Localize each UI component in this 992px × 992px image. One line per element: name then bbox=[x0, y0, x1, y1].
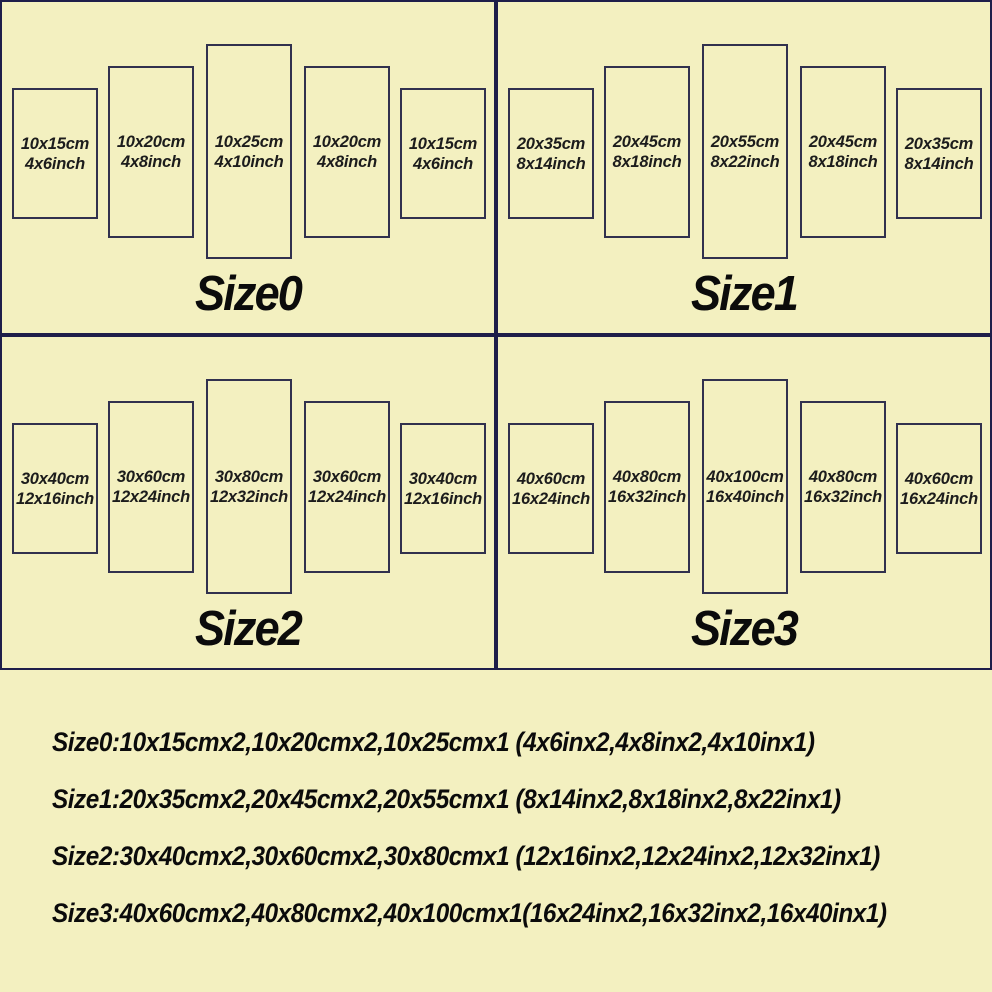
canvas-panel: 40x80cm 16x32inch bbox=[800, 401, 886, 573]
canvas-panel: 10x15cm 4x6inch bbox=[12, 88, 98, 219]
quadrant-size3: 40x60cm 16x24inch 40x80cm 16x32inch 40x1… bbox=[496, 335, 992, 670]
panel-size-inch: 8x18inch bbox=[808, 152, 877, 172]
size-summary-line-size1: Size1:20x35cmx2,20x45cmx2,20x55cmx1 (8x1… bbox=[52, 783, 898, 815]
panel-size-inch: 4x10inch bbox=[214, 152, 283, 172]
canvas-panel: 20x35cm 8x14inch bbox=[508, 88, 594, 219]
panel-size-cm: 30x60cm bbox=[313, 467, 381, 487]
panel-size-cm: 10x25cm bbox=[215, 132, 283, 152]
canvas-panel: 30x60cm 12x24inch bbox=[304, 401, 390, 573]
canvas-panel: 10x25cm 4x10inch bbox=[206, 44, 292, 259]
panel-size-inch: 8x18inch bbox=[612, 152, 681, 172]
panel-size-cm: 30x40cm bbox=[21, 469, 89, 489]
size-title: Size3 bbox=[518, 605, 971, 654]
panel-size-cm: 10x15cm bbox=[21, 134, 89, 154]
size-title: Size0 bbox=[22, 270, 475, 319]
panel-size-inch: 16x40inch bbox=[706, 487, 784, 507]
quadrant-size1: 20x35cm 8x14inch 20x45cm 8x18inch 20x55c… bbox=[496, 0, 992, 335]
size-summary-section: Size0:10x15cmx2,10x20cmx2,10x25cmx1 (4x6… bbox=[0, 670, 992, 992]
canvas-panel: 20x45cm 8x18inch bbox=[604, 66, 690, 238]
panel-size-inch: 12x24inch bbox=[308, 487, 386, 507]
size-options-grid: 10x15cm 4x6inch 10x20cm 4x8inch 10x25cm … bbox=[0, 0, 992, 670]
size-summary-line-size2: Size2:30x40cmx2,30x60cmx2,30x80cmx1 (12x… bbox=[52, 840, 898, 872]
quadrant-size2: 30x40cm 12x16inch 30x60cm 12x24inch 30x8… bbox=[0, 335, 496, 670]
canvas-panel: 20x55cm 8x22inch bbox=[702, 44, 788, 259]
panel-size-cm: 20x45cm bbox=[809, 132, 877, 152]
panel-size-cm: 20x45cm bbox=[613, 132, 681, 152]
canvas-panel: 40x60cm 16x24inch bbox=[508, 423, 594, 554]
canvas-panel: 20x45cm 8x18inch bbox=[800, 66, 886, 238]
panel-size-inch: 4x8inch bbox=[317, 152, 377, 172]
panel-size-inch: 12x16inch bbox=[16, 489, 94, 509]
panel-size-cm: 30x80cm bbox=[215, 467, 283, 487]
panel-size-cm: 30x60cm bbox=[117, 467, 185, 487]
panel-size-cm: 20x55cm bbox=[711, 132, 779, 152]
panel-size-cm: 40x80cm bbox=[613, 467, 681, 487]
canvas-panel: 30x40cm 12x16inch bbox=[12, 423, 98, 554]
canvas-panel: 10x20cm 4x8inch bbox=[108, 66, 194, 238]
canvas-panel: 10x20cm 4x8inch bbox=[304, 66, 390, 238]
panel-size-cm: 10x15cm bbox=[409, 134, 477, 154]
panel-size-cm: 30x40cm bbox=[409, 469, 477, 489]
panel-size-inch: 16x32inch bbox=[804, 487, 882, 507]
size-summary-line-size3: Size3:40x60cmx2,40x80cmx2,40x100cmx1(16x… bbox=[52, 897, 898, 929]
panel-size-cm: 20x35cm bbox=[905, 134, 973, 154]
panel-size-cm: 10x20cm bbox=[117, 132, 185, 152]
panel-size-cm: 40x80cm bbox=[809, 467, 877, 487]
canvas-panel: 40x80cm 16x32inch bbox=[604, 401, 690, 573]
panel-size-inch: 4x6inch bbox=[413, 154, 473, 174]
panel-size-inch: 8x22inch bbox=[710, 152, 779, 172]
panel-size-cm: 40x100cm bbox=[706, 467, 783, 487]
size-chart-image: 10x15cm 4x6inch 10x20cm 4x8inch 10x25cm … bbox=[0, 0, 992, 992]
canvas-panel: 20x35cm 8x14inch bbox=[896, 88, 982, 219]
panel-size-inch: 12x16inch bbox=[404, 489, 482, 509]
canvas-panel: 10x15cm 4x6inch bbox=[400, 88, 486, 219]
size-title: Size1 bbox=[518, 270, 971, 319]
size-summary-line-size0: Size0:10x15cmx2,10x20cmx2,10x25cmx1 (4x6… bbox=[52, 726, 898, 758]
panel-size-inch: 16x24inch bbox=[512, 489, 590, 509]
panel-size-inch: 4x6inch bbox=[25, 154, 85, 174]
panel-size-inch: 8x14inch bbox=[516, 154, 585, 174]
canvas-panel: 40x100cm 16x40inch bbox=[702, 379, 788, 594]
canvas-panel: 30x80cm 12x32inch bbox=[206, 379, 292, 594]
panel-size-inch: 16x24inch bbox=[900, 489, 978, 509]
panel-size-cm: 10x20cm bbox=[313, 132, 381, 152]
panel-size-cm: 20x35cm bbox=[517, 134, 585, 154]
panel-size-inch: 16x32inch bbox=[608, 487, 686, 507]
size-title: Size2 bbox=[22, 605, 475, 654]
quadrant-size0: 10x15cm 4x6inch 10x20cm 4x8inch 10x25cm … bbox=[0, 0, 496, 335]
panel-size-inch: 12x32inch bbox=[210, 487, 288, 507]
panel-size-inch: 12x24inch bbox=[112, 487, 190, 507]
panel-size-inch: 4x8inch bbox=[121, 152, 181, 172]
panel-size-inch: 8x14inch bbox=[904, 154, 973, 174]
canvas-panel: 30x60cm 12x24inch bbox=[108, 401, 194, 573]
canvas-panel: 40x60cm 16x24inch bbox=[896, 423, 982, 554]
canvas-panel: 30x40cm 12x16inch bbox=[400, 423, 486, 554]
panel-size-cm: 40x60cm bbox=[517, 469, 585, 489]
panel-size-cm: 40x60cm bbox=[905, 469, 973, 489]
